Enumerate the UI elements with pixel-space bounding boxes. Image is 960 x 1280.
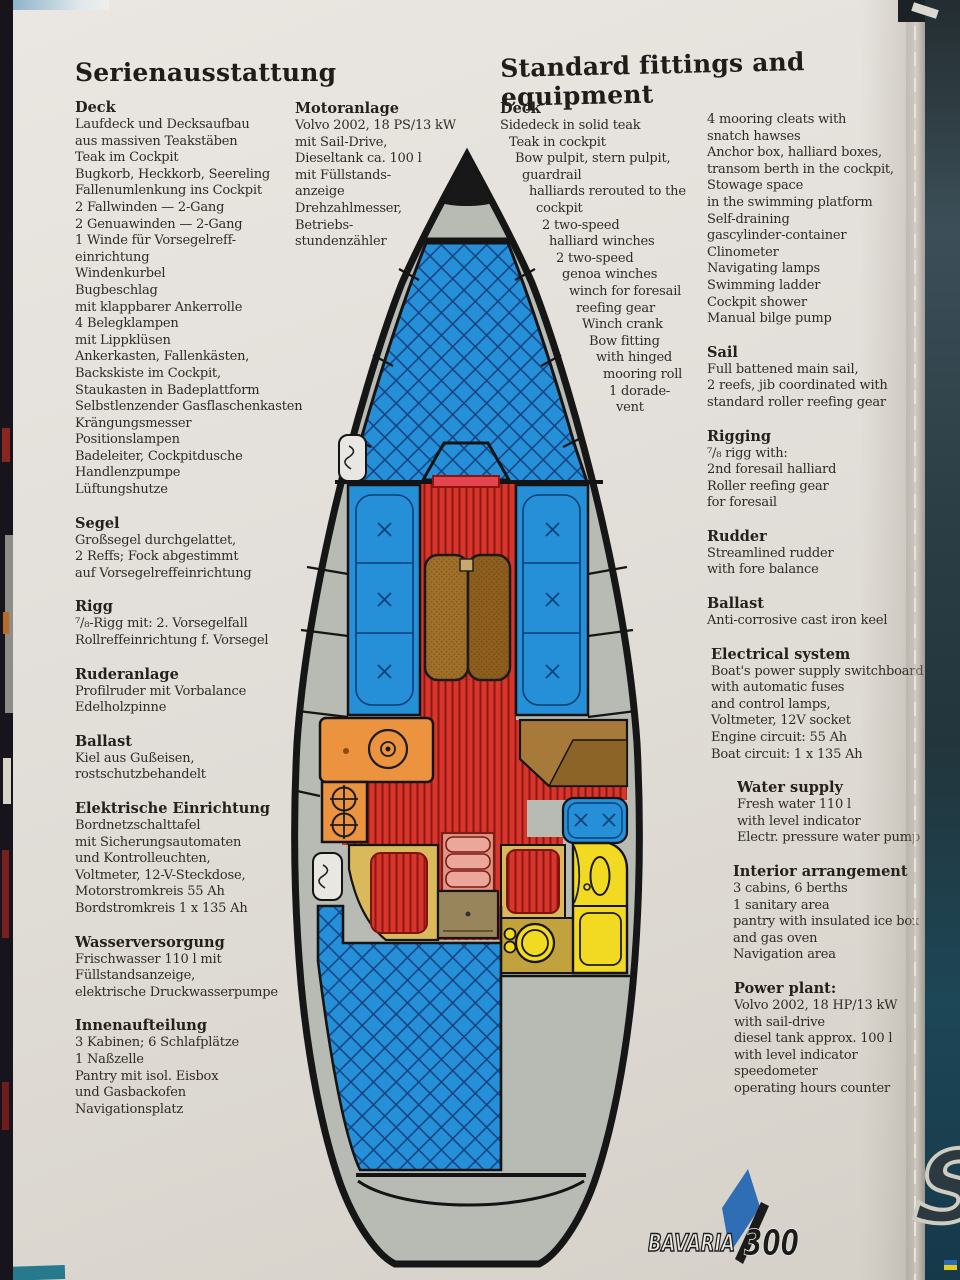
section-lines: 4 mooring cleats withsnatch hawsesAnchor… [707, 112, 917, 328]
spec-line: Volvo 2002, 18 PS/13 kW [295, 118, 475, 135]
spec-line: Motorstromkreis 55 Ah [75, 884, 305, 901]
section-lines: ⁷/₈-Rigg mit: 2. VorsegelfallRollreffein… [75, 616, 305, 649]
section-innenaufteilung: Innenaufteilung 3 Kabinen; 6 Schlafplätz… [75, 1017, 305, 1118]
section-ballast-de: Ballast Kiel aus Gußeisen,rostschutzbeha… [75, 733, 305, 784]
spec-line: Self-draining [707, 212, 917, 229]
section-interior: Interior arrangement 3 cabins, 6 berths1… [733, 863, 917, 964]
spec-line: Kiel aus Gußeisen, [75, 751, 305, 768]
spec-line: 1 sanitary area [733, 898, 917, 915]
spec-line: Fresh water 110 l [737, 797, 917, 814]
spec-line: Full battened main sail, [707, 362, 917, 379]
spec-line: Cockpit shower [707, 295, 917, 312]
binder-fleck [3, 612, 9, 634]
spec-line: mit Lippklüsen [75, 333, 305, 350]
section-heading: Rigg [75, 598, 305, 615]
section-heading: Elektrische Einrichtung [75, 800, 305, 817]
spec-line: cockpit [536, 201, 715, 218]
spec-line: Volvo 2002, 18 HP/13 kW [734, 998, 917, 1015]
spec-line: with fore balance [707, 562, 917, 579]
saloon-table [425, 555, 510, 680]
section-electrical: Electrical system Boat's power supply sw… [711, 646, 917, 764]
logo-brand: BAVARIA [648, 1229, 735, 1257]
spec-line: elektrische Druckwasserpumpe [75, 985, 305, 1002]
spec-line: Edelholzpinne [75, 700, 305, 717]
spec-line: 2 two-speed [542, 218, 715, 235]
spec-line: aus massiven Teakstäben [75, 134, 305, 151]
adjacent-page-flag-icon [944, 1260, 957, 1270]
spec-line: Frischwasser 110 l mit [75, 952, 305, 969]
spec-line: Clinometer [707, 245, 917, 262]
spec-line: Voltmeter, 12-V-Steckdose, [75, 868, 305, 885]
spec-line: Streamlined rudder [707, 546, 917, 563]
spec-line: Bordnetzschalttafel [75, 818, 305, 835]
binder-fleck [2, 428, 10, 462]
spec-line: operating hours counter [734, 1081, 917, 1098]
spec-line: Stowage space [707, 178, 917, 195]
spec-line: und Gasbackofen [75, 1085, 305, 1102]
spec-line: Bow pulpit, stern pulpit, [515, 151, 715, 168]
spec-line: mit Sicherungsautomaten [75, 835, 305, 852]
section-deck-de: Deck Laufdeck und Decksaufbauaus massive… [75, 99, 305, 499]
spec-line: reefing gear [576, 301, 715, 318]
spec-line: Handlenzpumpe [75, 465, 305, 482]
spec-line: mit Füllstands- [295, 168, 475, 185]
section-heading: Electrical system [711, 646, 917, 663]
companionway-hatch [433, 476, 499, 487]
section-lines: Profilruder mit VorbalanceEdelholzpinne [75, 684, 305, 717]
binder-fleck [2, 850, 9, 938]
spec-line: speedometer [734, 1064, 917, 1081]
section-lines: Fresh water 110 lwith level indicatorEle… [737, 797, 917, 847]
spec-line: with hinged [596, 350, 715, 367]
spec-line: Anchor box, halliard boxes, [707, 145, 917, 162]
spec-line: genoa winches [562, 267, 715, 284]
section-wasserversorgung: Wasserversorgung Frischwasser 110 l mitF… [75, 934, 305, 1002]
binder-fleck [2, 1082, 9, 1130]
spec-line: Manual bilge pump [707, 311, 917, 328]
section-lines: 3 Kabinen; 6 Schlafplätze1 NaßzellePantr… [75, 1035, 305, 1118]
spec-line: Drehzahlmesser, [295, 201, 475, 218]
spec-line: Ankerkasten, Fallenkästen, [75, 349, 305, 366]
english-specs-column: 4 mooring cleats withsnatch hawsesAnchor… [707, 112, 917, 1114]
section-heading: Motoranlage [295, 100, 475, 117]
section-heading: Rudder [707, 528, 917, 545]
section-lines: Frischwasser 110 l mitFüllstandsanzeige,… [75, 952, 305, 1002]
section-power-plant: Power plant: Volvo 2002, 18 HP/13 kWwith… [734, 980, 917, 1098]
section-lines: 3 cabins, 6 berths1 sanitary areapantry … [733, 881, 917, 964]
section-lines: Full battened main sail,2 reefs, jib coo… [707, 362, 917, 412]
spec-line: 4 mooring cleats with [707, 112, 917, 129]
spec-line: guardrail [522, 168, 715, 185]
motor-specs-column: Motoranlage Volvo 2002, 18 PS/13 kWmit S… [295, 100, 475, 267]
spec-line: Füllstandsanzeige, [75, 968, 305, 985]
spec-line: mooring roll [603, 367, 715, 384]
spec-line: rostschutzbehandelt [75, 767, 305, 784]
spec-line: Betriebs- [295, 218, 475, 235]
section-lines: Streamlined rudderwith fore balance [707, 546, 917, 579]
spec-line: einrichtung [75, 250, 305, 267]
spec-line: Windenkurbel [75, 266, 305, 283]
spec-line: with automatic fuses [711, 680, 917, 697]
deck-vent-aft [313, 853, 342, 900]
section-rudder: Rudder Streamlined rudderwith fore balan… [707, 528, 917, 579]
spec-line: Navigating lamps [707, 261, 917, 278]
spec-line: Voltmeter, 12V socket [711, 713, 917, 730]
spec-line: pantry with insulated ice box [733, 914, 917, 931]
adjacent-page-photo-strip [925, 0, 960, 1280]
spec-line: Rollreffeinrichtung f. Vorsegel [75, 633, 305, 650]
toilet-area [501, 918, 573, 973]
spec-line: 1 dorade- [609, 384, 715, 401]
spec-line: standard roller reefing gear [707, 395, 917, 412]
spec-line: Bugkorb, Heckkorb, Seereling [75, 167, 305, 184]
spec-line: transom berth in the cockpit, [707, 162, 917, 179]
section-ruderanlage: Ruderanlage Profilruder mit VorbalanceEd… [75, 666, 305, 717]
spec-line: ⁷/₈ rigg with: [707, 446, 917, 463]
section-heading: Water supply [737, 779, 917, 796]
spec-line: Navigationsplatz [75, 1102, 305, 1119]
spec-line: and gas oven [733, 931, 917, 948]
section-heading: Power plant: [734, 980, 917, 997]
spec-line: Roller reefing gear [707, 479, 917, 496]
section-heading: Rigging [707, 428, 917, 445]
navigation-seat [563, 798, 627, 843]
spec-line: Fallenumlenkung ins Cockpit [75, 183, 305, 200]
section-lines: Bordnetzschalttafelmit Sicherungsautomat… [75, 818, 305, 918]
page-top-edge-sliver [13, 0, 109, 10]
spec-line: diesel tank approx. 100 l [734, 1031, 917, 1048]
spec-line: Teak im Cockpit [75, 150, 305, 167]
spec-line: halliards rerouted to the [529, 184, 715, 201]
spec-line: Boat circuit: 1 x 135 Ah [711, 747, 917, 764]
spec-line: Bow fitting [589, 334, 715, 351]
spec-line: 2 Genuawinden — 2-Gang [75, 217, 305, 234]
spec-line: Boat's power supply switchboard [711, 664, 917, 681]
page-edge-tape [906, 0, 926, 1280]
spec-line: 3 Kabinen; 6 Schlafplätze [75, 1035, 305, 1052]
spec-line: Staukasten in Badeplattform [75, 383, 305, 400]
section-lines: Laufdeck und Decksaufbauaus massiven Tea… [75, 117, 305, 499]
spec-line: snatch hawses [707, 129, 917, 146]
spec-line: for foresail [707, 495, 917, 512]
spec-line: Pantry mit isol. Eisbox [75, 1069, 305, 1086]
spec-line: in the swimming platform [707, 195, 917, 212]
section-lines: Großsegel durchgelattet,2 Reffs; Fock ab… [75, 533, 305, 583]
section-heading: Deck [500, 100, 715, 117]
section-deck-en: Deck Sidedeck in solid teakTeak in cockp… [500, 100, 715, 417]
section-segel: Segel Großsegel durchgelattet,2 Reffs; F… [75, 515, 305, 583]
spec-line: mit klappbarer Ankerrolle [75, 300, 305, 317]
spec-line: Teak in cockpit [509, 135, 715, 152]
spec-line: Sidedeck in solid teak [500, 118, 715, 135]
spec-line: Selbstlenzender Gasflaschenkasten [75, 399, 305, 416]
spec-line: Swimming ladder [707, 278, 917, 295]
companionway-steps [442, 833, 494, 891]
spec-line: Krängungsmesser [75, 416, 305, 433]
binder-fleck [3, 758, 11, 804]
logo-model: 300 [744, 1223, 799, 1264]
galley-sink-counter [320, 718, 433, 782]
spec-line: Lüftungshutze [75, 482, 305, 499]
spec-line: and control lamps, [711, 697, 917, 714]
spec-line: winch for foresail [569, 284, 715, 301]
saloon-settee-port [348, 485, 420, 715]
spec-line: 1 Naßzelle [75, 1052, 305, 1069]
section-heading: Wasserversorgung [75, 934, 305, 951]
section-deck-en-continued: 4 mooring cleats withsnatch hawsesAnchor… [707, 112, 917, 328]
section-heading: Innenaufteilung [75, 1017, 305, 1034]
page-edge-crease [914, 0, 916, 1280]
spec-line: Electr. pressure water pump [737, 830, 917, 847]
spec-line: with level indicator [734, 1048, 917, 1065]
spec-line: 1 Winde für Vorsegelreff- [75, 233, 305, 250]
spec-line: Bordstromkreis 1 x 135 Ah [75, 901, 305, 918]
section-heading: Sail [707, 344, 917, 361]
section-heading: Ballast [707, 595, 917, 612]
spec-line: auf Vorsegelreffeinrichtung [75, 566, 305, 583]
section-lines: Volvo 2002, 18 HP/13 kWwith sail-drivedi… [734, 998, 917, 1098]
spec-line: stundenzähler [295, 234, 475, 251]
spec-line: Engine circuit: 55 Ah [711, 730, 917, 747]
section-rigg: Rigg ⁷/₈-Rigg mit: 2. VorsegelfallRollre… [75, 598, 305, 649]
section-motoranlage: Motoranlage Volvo 2002, 18 PS/13 kWmit S… [295, 100, 475, 251]
spec-line: Backskiste im Cockpit, [75, 366, 305, 383]
stove [322, 782, 367, 842]
section-heading: Ballast [75, 733, 305, 750]
section-lines: Volvo 2002, 18 PS/13 kWmit Sail-Drive,Di… [295, 118, 475, 251]
spec-line: 2 reefs, jib coordinated with [707, 378, 917, 395]
spec-line: Positionslampen [75, 432, 305, 449]
bavaria-300-logo: BAVARIA 300 [648, 1158, 823, 1268]
spec-line: anzeige [295, 184, 475, 201]
spec-line: 2 Fallwinden — 2-Gang [75, 200, 305, 217]
section-water-supply: Water supply Fresh water 110 lwith level… [737, 779, 917, 847]
head-compartment [573, 843, 627, 973]
spec-line: Anti-corrosive cast iron keel [707, 613, 917, 630]
bottom-left-page-edge [5, 1265, 65, 1280]
section-sail: Sail Full battened main sail,2 reefs, ji… [707, 344, 917, 412]
spec-line: Laufdeck und Decksaufbau [75, 117, 305, 134]
section-lines: ⁷/₈ rigg with:2nd foresail halliardRolle… [707, 446, 917, 512]
spec-line: 4 Belegklampen [75, 316, 305, 333]
section-heading: Segel [75, 515, 305, 532]
spec-line: gascylinder-container [707, 228, 917, 245]
spec-line: Dieseltank ca. 100 l [295, 151, 475, 168]
spec-line: Großsegel durchgelattet, [75, 533, 305, 550]
section-lines: Boat's power supply switchboardwith auto… [711, 664, 917, 764]
spec-line: und Kontrolleuchten, [75, 851, 305, 868]
spec-line: halliard winches [549, 234, 715, 251]
spec-line: Bugbeschlag [75, 283, 305, 300]
spec-line: 2 Reffs; Fock abgestimmt [75, 549, 305, 566]
section-lines: Kiel aus Gußeisen,rostschutzbehandelt [75, 751, 305, 784]
spec-line: 3 cabins, 6 berths [733, 881, 917, 898]
section-rigging: Rigging ⁷/₈ rigg with:2nd foresail halli… [707, 428, 917, 512]
spec-line: ⁷/₈-Rigg mit: 2. Vorsegelfall [75, 616, 305, 633]
section-elektrische: Elektrische Einrichtung Bordnetzschaltta… [75, 800, 305, 918]
spec-line: Navigation area [733, 947, 917, 964]
spec-line: 2 two-speed [556, 251, 715, 268]
german-specs-column: Deck Laufdeck und Decksaufbauaus massive… [75, 99, 305, 1134]
saloon-settee-starboard [516, 485, 588, 715]
section-ballast-en: Ballast Anti-corrosive cast iron keel [707, 595, 917, 630]
aft-berth-starboard [501, 845, 565, 918]
spec-line: Profilruder mit Vorbalance [75, 684, 305, 701]
spec-line: vent [616, 400, 715, 417]
section-lines: Anti-corrosive cast iron keel [707, 613, 917, 630]
section-heading: Interior arrangement [733, 863, 917, 880]
spec-line: with level indicator [737, 814, 917, 831]
spec-line: with sail-drive [734, 1015, 917, 1032]
deck-vent-forward [339, 435, 366, 481]
spec-line: Badeleiter, Cockpitdusche [75, 449, 305, 466]
section-heading: Ruderanlage [75, 666, 305, 683]
english-deck-column: Deck Sidedeck in solid teakTeak in cockp… [500, 100, 715, 433]
section-lines: Sidedeck in solid teakTeak in cockpitBow… [500, 118, 715, 417]
page-title-german: Serienausstattung [75, 58, 336, 87]
section-heading: Deck [75, 99, 305, 116]
spec-line: 2nd foresail halliard [707, 462, 917, 479]
engine-box [438, 891, 498, 938]
spec-line: Winch crank [582, 317, 715, 334]
spec-line: mit Sail-Drive, [295, 135, 475, 152]
